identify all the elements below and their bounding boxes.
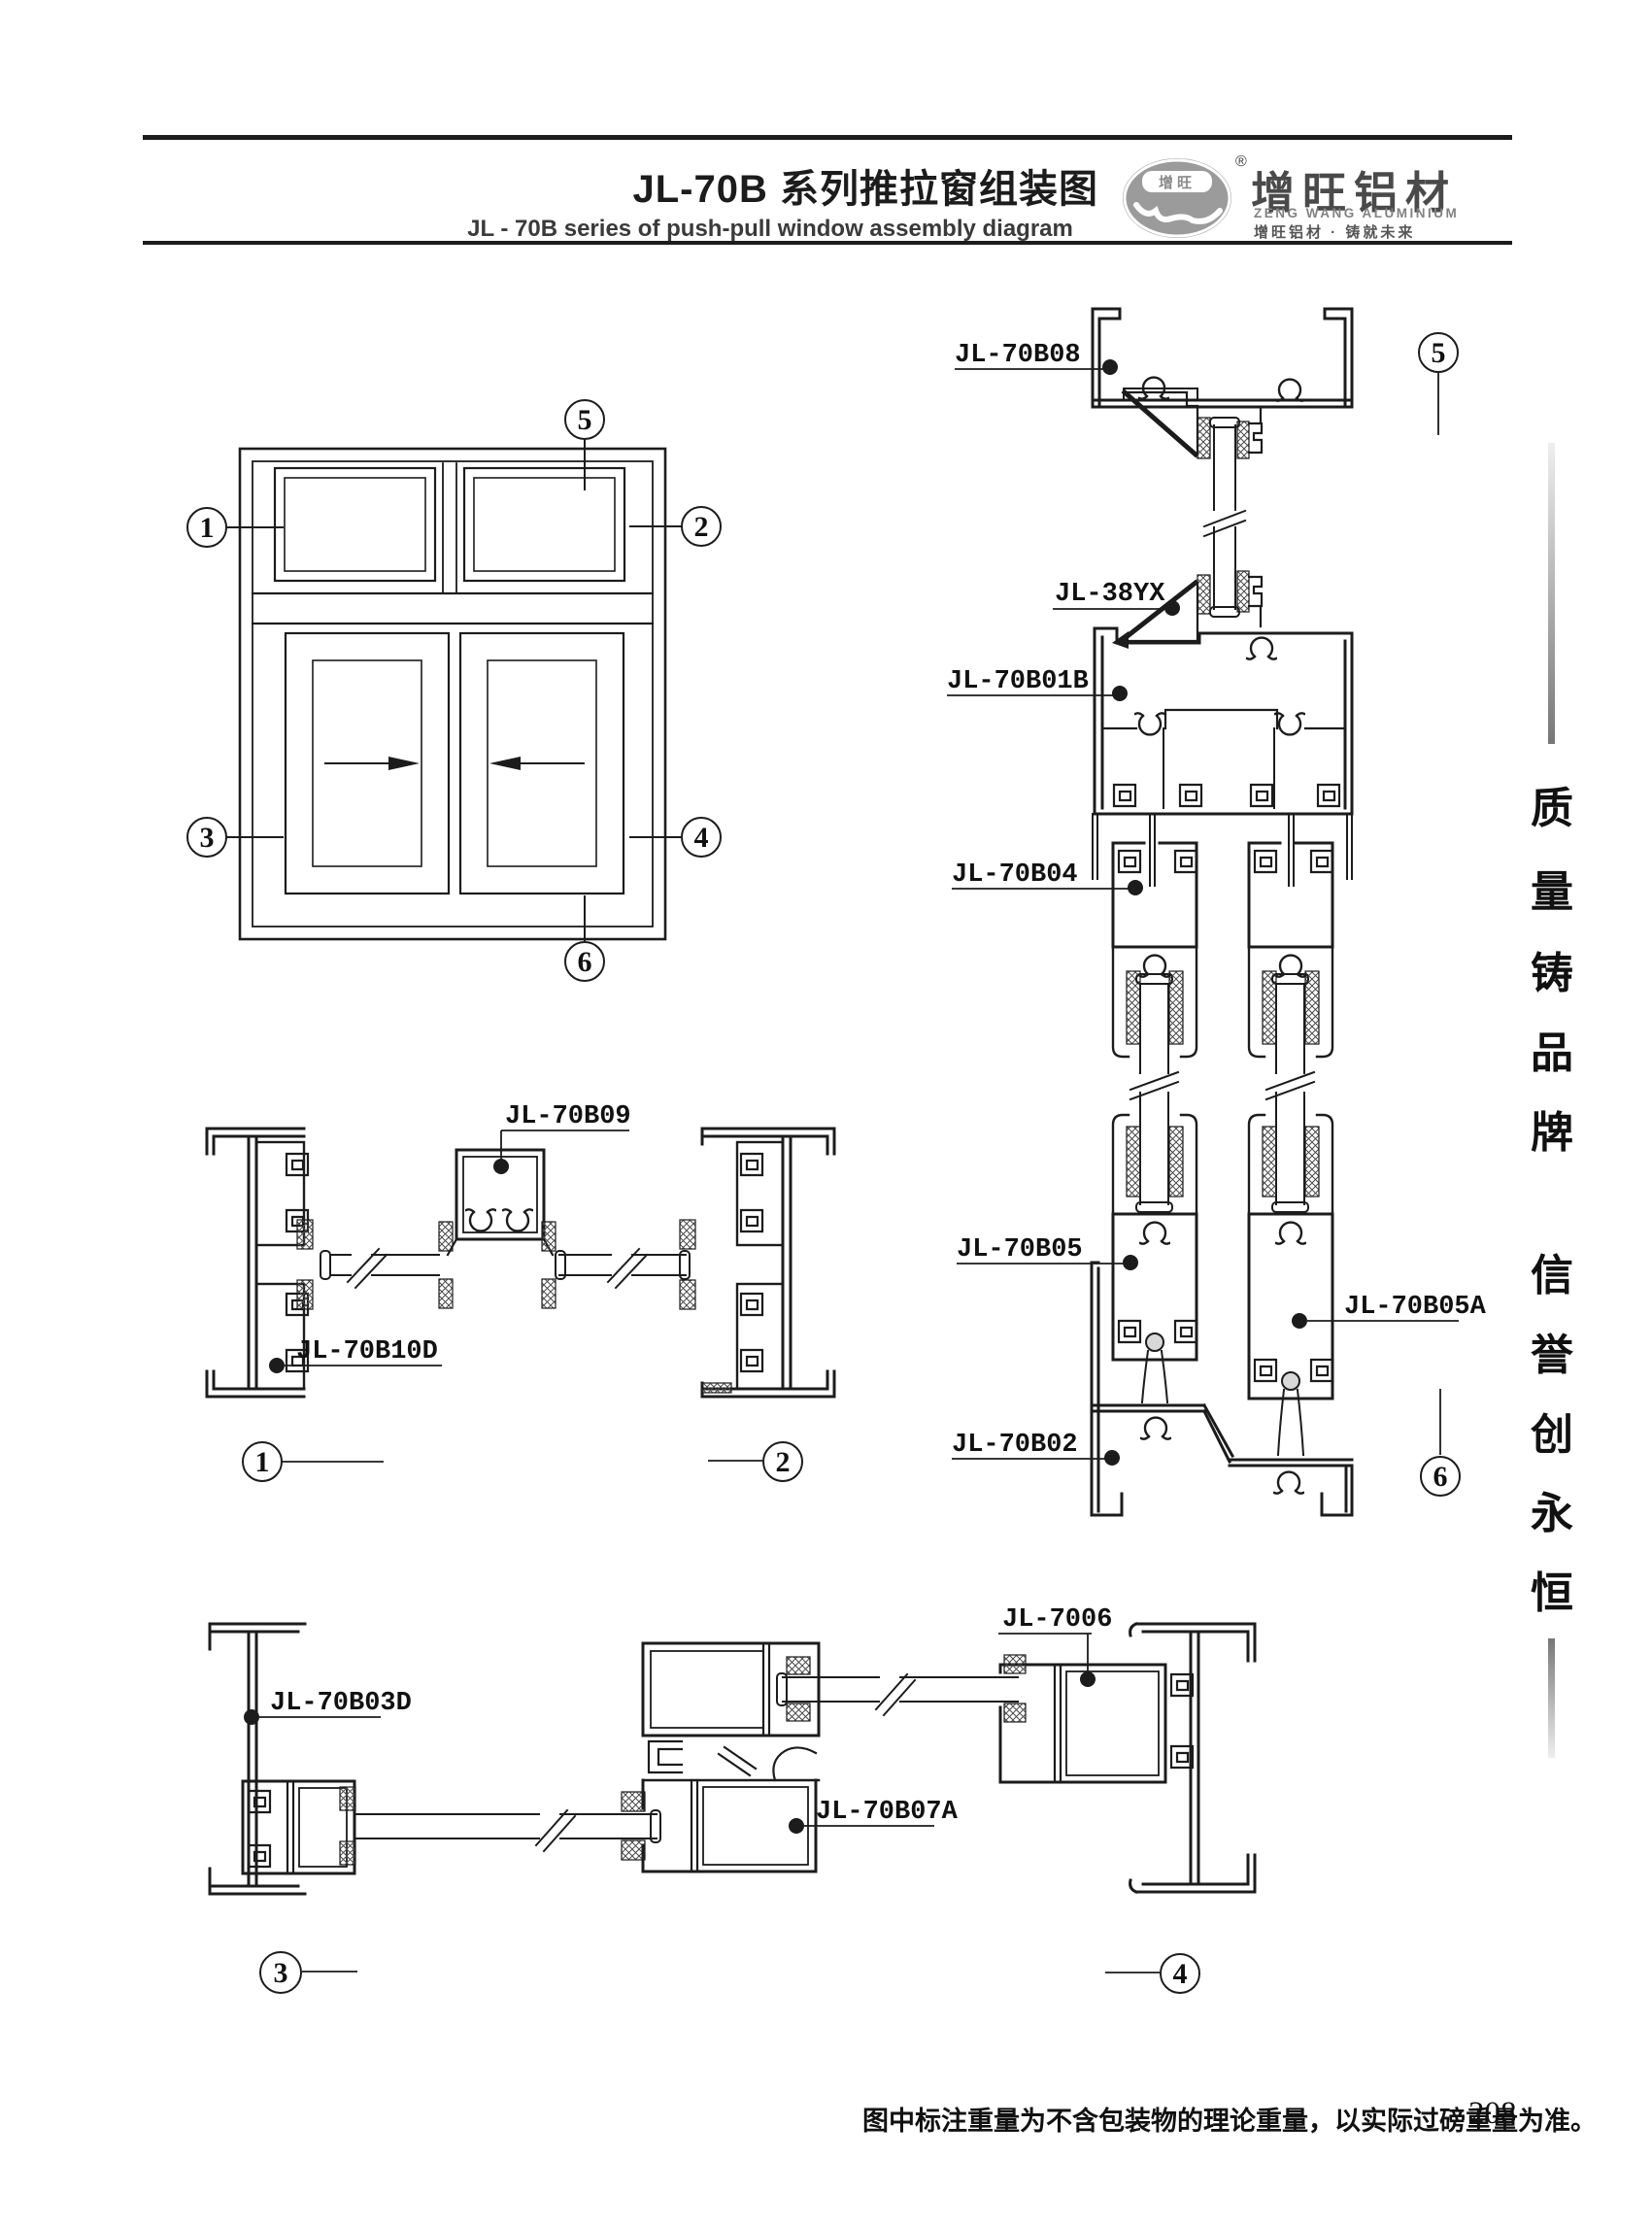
upper-sash-rails	[1113, 843, 1332, 1057]
part-label-jl-70b05a: JL-70B05A	[1292, 1293, 1487, 1329]
callout-5-section: 5	[1419, 333, 1458, 435]
svg-text:2: 2	[694, 511, 709, 543]
svg-text:JL-38YX: JL-38YX	[1055, 580, 1165, 609]
svg-text:5: 5	[1432, 337, 1446, 369]
leader-dot	[1112, 686, 1128, 701]
svg-text:4: 4	[694, 822, 709, 854]
svg-text:JL-7006: JL-7006	[1002, 1605, 1112, 1635]
callout-4: 4	[629, 818, 721, 857]
svg-text:JL-70B05A: JL-70B05A	[1344, 1293, 1487, 1322]
svg-text:JL-70B02: JL-70B02	[952, 1431, 1078, 1460]
part-label-jl-70b02: JL-70B02	[952, 1431, 1120, 1466]
callout-3: 3	[187, 818, 284, 857]
sill-profile	[1092, 1263, 1352, 1515]
svg-text:JL-70B01B: JL-70B01B	[947, 667, 1089, 696]
part-label-jl-70b07a: JL-70B07A	[789, 1798, 959, 1834]
svg-text:5: 5	[578, 404, 592, 436]
leader-dot	[1292, 1313, 1307, 1329]
part-label-jl-70b01b: JL-70B01B	[947, 667, 1128, 701]
svg-text:JL-70B04: JL-70B04	[952, 860, 1078, 890]
svg-text:3: 3	[274, 1957, 288, 1989]
svg-text:6: 6	[1433, 1461, 1448, 1493]
callout-5: 5	[565, 400, 604, 490]
svg-text:JL-70B03D: JL-70B03D	[270, 1689, 412, 1718]
callout-2: 2	[629, 507, 721, 546]
part-label-jl-70b10d: JL-70B10D	[269, 1337, 442, 1373]
svg-text:JL-70B09: JL-70B09	[505, 1102, 631, 1131]
svg-text:1: 1	[255, 1446, 270, 1478]
leader-dot	[493, 1159, 509, 1174]
vertical-section	[1092, 309, 1352, 1515]
leader-dot	[244, 1709, 259, 1725]
leader-dot	[789, 1818, 804, 1834]
leader-dot	[1128, 880, 1143, 895]
callout-6-section: 6	[1421, 1389, 1460, 1496]
svg-text:JL-70B07A: JL-70B07A	[816, 1798, 959, 1827]
leader-dot	[1104, 1450, 1120, 1466]
callout-3-section: 3	[260, 1952, 357, 1993]
svg-text:JL-70B05: JL-70B05	[957, 1235, 1083, 1265]
bottom-horizontal-section	[210, 1624, 1255, 1894]
svg-text:4: 4	[1173, 1958, 1188, 1990]
catalog-page: JL-70B 系列推拉窗组装图 JL - 70B series of push-…	[0, 0, 1652, 2226]
part-label-jl-70b09: JL-70B09	[493, 1102, 631, 1174]
slide-arrow-right-icon	[325, 757, 420, 770]
assembly-drawing: 1 2 3 4 5 6	[0, 0, 1652, 2226]
leader-dot	[1102, 359, 1118, 375]
svg-text:2: 2	[776, 1446, 791, 1478]
slide-arrow-left-icon	[489, 757, 584, 770]
part-label-jl-70b03d: JL-70B03D	[244, 1689, 412, 1725]
leader-dot	[1080, 1671, 1096, 1687]
svg-text:JL-70B08: JL-70B08	[955, 341, 1081, 370]
callout-1-section: 1	[243, 1442, 384, 1481]
leader-dot	[1123, 1255, 1138, 1270]
glass-panes-vertical	[1130, 974, 1314, 1212]
svg-text:6: 6	[578, 946, 592, 978]
page-number: 208	[1468, 2096, 1517, 2132]
part-label-jl-70b05: JL-70B05	[957, 1235, 1138, 1270]
callout-1: 1	[187, 508, 284, 547]
leader-dot	[1164, 600, 1180, 616]
callout-4-section: 4	[1105, 1954, 1199, 1993]
svg-text:JL-70B10D: JL-70B10D	[296, 1337, 438, 1366]
window-elevation	[240, 449, 665, 939]
svg-text:3: 3	[200, 822, 215, 854]
callout-2-section: 2	[708, 1442, 802, 1481]
svg-text:1: 1	[200, 512, 215, 544]
leader-dot	[269, 1358, 285, 1373]
